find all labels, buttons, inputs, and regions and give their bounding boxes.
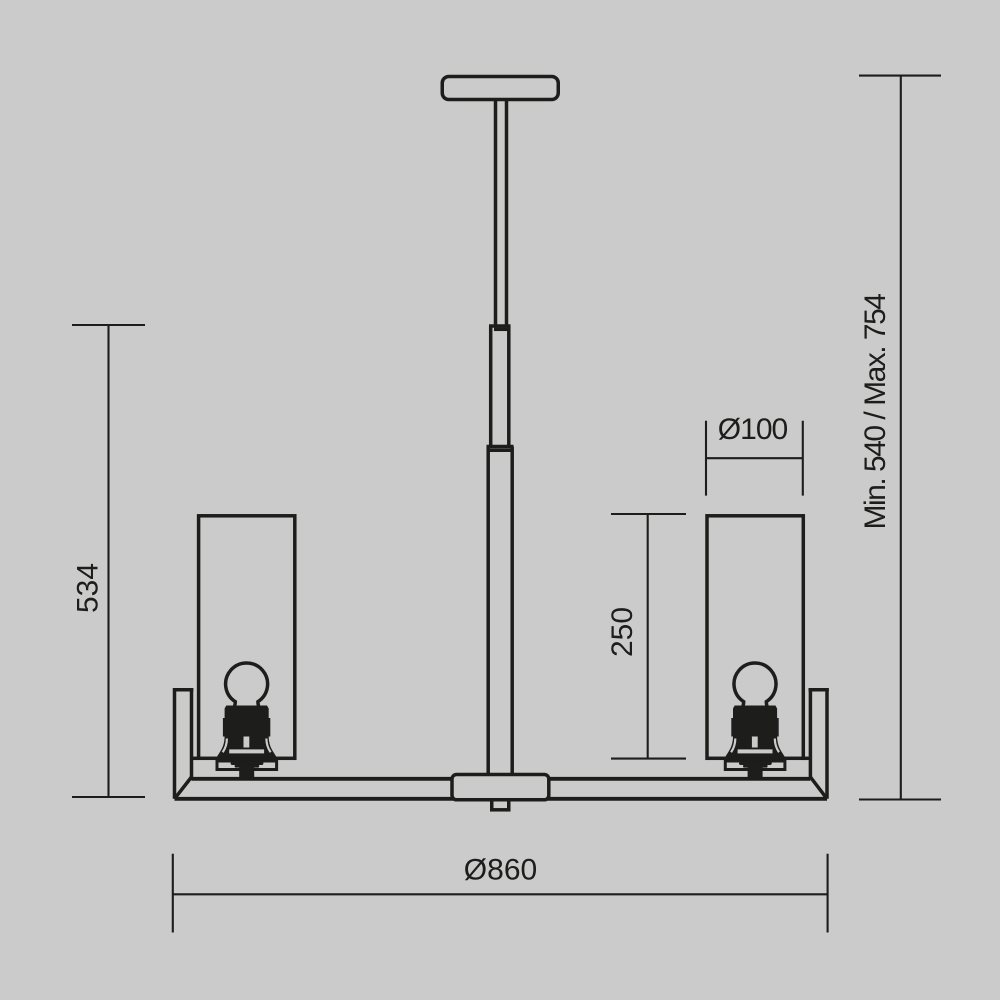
svg-text:Min. 540 / Max. 754: Min. 540 / Max. 754 bbox=[859, 294, 892, 530]
svg-text:Ø860: Ø860 bbox=[464, 854, 537, 887]
svg-text:534: 534 bbox=[72, 563, 105, 613]
svg-text:Ø100: Ø100 bbox=[718, 413, 788, 446]
svg-text:250: 250 bbox=[606, 607, 639, 657]
